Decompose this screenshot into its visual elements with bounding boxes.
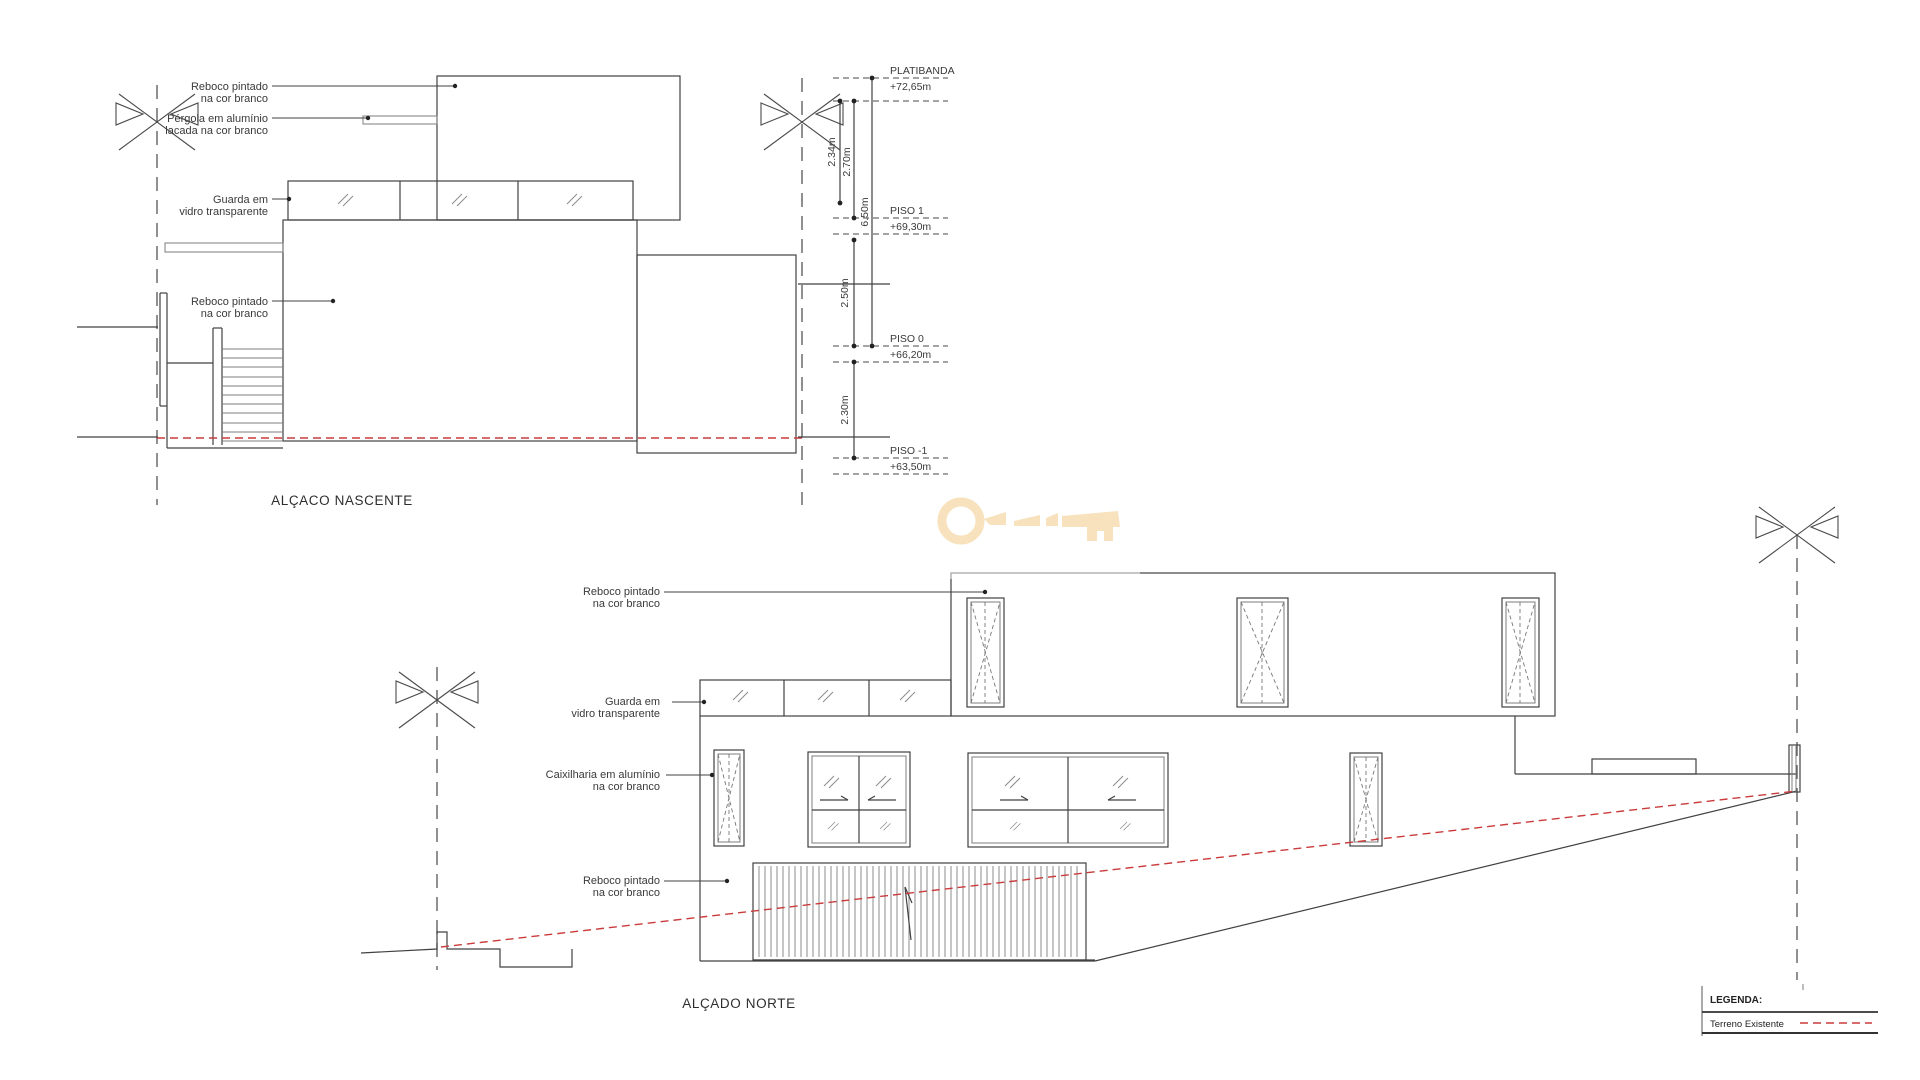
dim-2-30: 2.30m — [839, 395, 851, 424]
level-piso0-elev: +66,20m — [890, 349, 931, 361]
dim-2-34: 2.34m — [826, 137, 838, 166]
north-elevation-title: ALÇADO NORTE — [682, 996, 795, 1011]
levels-scale: 2.34m 2.70m 6.50m 2.50m 2.30m PLATIBANDA… — [798, 65, 955, 474]
east-label-guarda-1: Guarda em — [213, 194, 268, 206]
dim-6-50: 6.50m — [859, 197, 871, 226]
north-label-guarda-2: vidro transparente — [571, 708, 660, 720]
level-piso-1-name: PISO -1 — [890, 445, 928, 457]
north-label-reboco-low-1: Reboco pintado — [583, 875, 660, 887]
level-piso0-name: PISO 0 — [890, 333, 924, 345]
east-label-reboco-low-2: na cor branco — [201, 308, 268, 320]
ledge — [165, 243, 283, 252]
ground-window-wide — [968, 753, 1168, 847]
level-piso1-elev: +69,30m — [890, 221, 931, 233]
glass-guard — [288, 181, 633, 220]
north-annotations: Reboco pintado na cor branco Guarda em v… — [546, 586, 660, 899]
east-label-guarda-2: vidro transparente — [179, 206, 268, 218]
north-label-guarda-1: Guarda em — [605, 696, 660, 708]
glass-guard — [700, 680, 951, 716]
dim-2-50: 2.50m — [839, 278, 851, 307]
ground-window-tall-right — [1350, 753, 1382, 846]
east-glass-hatches — [338, 194, 582, 206]
east-label-pergola-1: Pérgola em alumínio — [167, 113, 268, 125]
drawing-sheet: Reboco pintado na cor branco Pérgola em … — [0, 0, 1920, 1080]
slide-arrows — [820, 796, 896, 800]
north-elevation: Reboco pintado na cor branco Guarda em v… — [361, 507, 1838, 1011]
terrain-left — [361, 932, 572, 967]
legend: LEGENDA: Terreno Existente — [1702, 984, 1878, 1036]
east-annotations: Reboco pintado na cor branco Pérgola em … — [165, 81, 268, 320]
watermark-text-band — [950, 566, 1140, 579]
east-label-reboco-top-1: Reboco pintado — [191, 81, 268, 93]
north-label-reboco-top-2: na cor branco — [593, 598, 660, 610]
dim-2-70: 2.70m — [841, 147, 853, 176]
north-leader-lines — [664, 590, 987, 883]
drawing-canvas: Reboco pintado na cor branco Pérgola em … — [0, 0, 1920, 1080]
gate-pillar — [1789, 745, 1800, 792]
planter — [1592, 759, 1696, 774]
upper-window-3 — [1502, 598, 1539, 707]
north-glass-hatches — [733, 690, 915, 702]
north-label-reboco-top-1: Reboco pintado — [583, 586, 660, 598]
north-label-caixilharia-2: na cor branco — [593, 781, 660, 793]
north-label-reboco-low-2: na cor branco — [593, 887, 660, 899]
garage-door — [753, 863, 1095, 960]
east-stairs — [213, 328, 283, 445]
terrain-line-north — [441, 791, 1797, 947]
east-elevation-title: ALÇACO NASCENTE — [271, 493, 413, 508]
ground-window-tall-left — [714, 750, 744, 846]
level-piso-1-elev: +63,50m — [890, 461, 931, 473]
north-label-caixilharia-1: Caixilharia em alumínio — [546, 769, 660, 781]
ground-window-4pane — [808, 752, 910, 847]
key-icon — [942, 502, 1140, 579]
legend-item-label: Terreno Existente — [1710, 1019, 1784, 1030]
east-elevation: Reboco pintado na cor branco Pérgola em … — [77, 65, 955, 508]
level-piso1-name: PISO 1 — [890, 205, 924, 217]
pergola-bar — [363, 116, 437, 124]
east-label-reboco-top-2: na cor branco — [201, 93, 268, 105]
level-platibanda-elev: +72,65m — [890, 81, 931, 93]
upper-window-1 — [967, 598, 1004, 707]
east-leader-lines — [272, 84, 457, 303]
level-platibanda-name: PLATIBANDA — [890, 65, 955, 77]
legend-title: LEGENDA: — [1710, 995, 1762, 1006]
terrain-slope — [1095, 791, 1797, 961]
east-label-pergola-2: lacada na cor branco — [165, 125, 268, 137]
east-label-reboco-low-1: Reboco pintado — [191, 296, 268, 308]
benchmark-icon — [1756, 507, 1838, 563]
upper-window-2 — [1237, 598, 1288, 707]
